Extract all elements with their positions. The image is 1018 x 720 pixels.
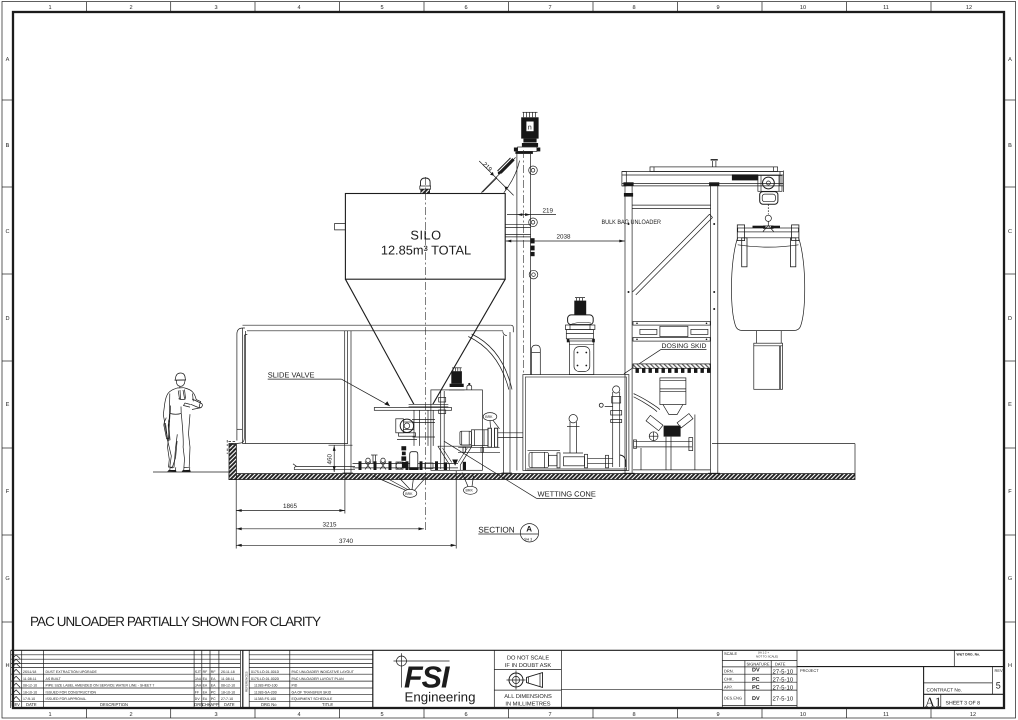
svg-text:0175-LO-01-002D: 0175-LO-01-002D	[251, 677, 280, 681]
svg-text:4: 4	[297, 712, 300, 718]
svg-text:RF: RF	[203, 670, 208, 674]
svg-text:DV: DV	[752, 696, 760, 702]
svg-text:3215: 3215	[323, 521, 338, 528]
svg-text:ISSUED FOR APPROVAL: ISSUED FOR APPROVAL	[46, 697, 87, 701]
svg-text:11383-PID-100: 11383-PID-100	[254, 684, 278, 688]
svg-text:E: E	[6, 402, 10, 408]
svg-text:PID: PID	[292, 684, 298, 688]
svg-text:8: 8	[632, 712, 635, 718]
svg-text:12: 12	[966, 5, 972, 11]
svg-text:10: 10	[800, 712, 806, 718]
svg-text:11383-GA-200: 11383-GA-200	[254, 690, 277, 694]
svg-text:27-5-10: 27-5-10	[773, 668, 794, 675]
svg-text:B: B	[6, 143, 10, 149]
svg-text:EA: EA	[203, 697, 208, 701]
svg-text:5: 5	[380, 712, 383, 718]
svg-text:SLIDE VALVE: SLIDE VALVE	[268, 371, 315, 380]
svg-text:BRK: BRK	[466, 489, 474, 493]
svg-text:EA: EA	[203, 690, 208, 694]
svg-text:11: 11	[883, 712, 889, 718]
svg-text:2: 2	[129, 5, 132, 11]
svg-text:11383-FS-100: 11383-FS-100	[254, 697, 276, 701]
svg-text:DATE: DATE	[775, 661, 786, 666]
svg-text:SCALE: SCALE	[724, 651, 737, 656]
svg-text:0175-LO-01-001D: 0175-LO-01-001D	[251, 670, 280, 674]
svg-text:CHK.: CHK.	[724, 677, 734, 682]
svg-text:18-10-10: 18-10-10	[221, 690, 235, 694]
svg-text:H: H	[1008, 663, 1012, 669]
svg-text:1: 1	[48, 712, 51, 718]
svg-text:PIPE SIZE LABEL AMENDED ON SER: PIPE SIZE LABEL AMENDED ON SERVICE WATER…	[46, 684, 155, 688]
svg-text:APP.: APP.	[724, 685, 733, 690]
svg-text:AS BUILT: AS BUILT	[46, 677, 62, 681]
svg-text:DRG No: DRG No	[261, 702, 277, 707]
svg-text:5: 5	[380, 5, 383, 11]
svg-text:9: 9	[716, 5, 719, 11]
svg-text:DV: DV	[752, 668, 760, 674]
svg-text:26/11/18: 26/11/18	[23, 670, 36, 674]
svg-text:CONTRACT No.: CONTRACT No.	[927, 687, 962, 693]
svg-text:6: 6	[464, 712, 467, 718]
svg-text:3: 3	[214, 712, 217, 718]
svg-text:SECTION: SECTION	[478, 526, 514, 535]
svg-text:TITLE: TITLE	[322, 702, 333, 707]
svg-text:E: E	[1008, 402, 1012, 408]
svg-text:GA OF TRANSFER SKID: GA OF TRANSFER SKID	[292, 690, 332, 694]
svg-text:W&T DRG. No.: W&T DRG. No.	[957, 653, 981, 657]
svg-text:PC: PC	[211, 690, 216, 694]
svg-text:SHEET 3 OF 8: SHEET 3 OF 8	[946, 701, 981, 707]
svg-text:BULK BAG UNLOADER: BULK BAG UNLOADER	[602, 219, 662, 226]
svg-text:G: G	[1008, 576, 1012, 582]
svg-text:EA: EA	[211, 677, 216, 681]
svg-text:F: F	[1008, 489, 1012, 495]
svg-text:G: G	[5, 576, 9, 582]
svg-text:4: 4	[297, 5, 300, 11]
svg-text:A: A	[1008, 57, 1012, 63]
svg-text:n: n	[528, 123, 532, 132]
svg-text:12: 12	[970, 712, 976, 718]
svg-text:17-9-10: 17-9-10	[23, 697, 35, 701]
svg-text:3: 3	[214, 5, 217, 11]
svg-text:JAA: JAA	[195, 677, 202, 681]
svg-text:2038: 2038	[557, 233, 572, 240]
svg-text:DES.ENG: DES.ENG	[724, 695, 742, 700]
svg-text:REFERENCES: REFERENCES	[245, 671, 249, 692]
svg-text:FF: FF	[195, 690, 199, 694]
svg-text:18-10-10: 18-10-10	[23, 690, 37, 694]
svg-text:PAC UNLOADER INDICATIVE LAYOUT: PAC UNLOADER INDICATIVE LAYOUT	[292, 670, 355, 674]
svg-text:PC: PC	[752, 685, 760, 691]
svg-text:SIGNATURE: SIGNATURE	[747, 661, 770, 666]
svg-text:27-5-10: 27-5-10	[773, 684, 794, 691]
svg-text:PC: PC	[211, 697, 216, 701]
svg-text:27-5-10: 27-5-10	[773, 676, 794, 683]
svg-text:2: 2	[129, 712, 132, 718]
svg-text:APP: APP	[210, 702, 218, 707]
svg-text:460: 460	[327, 453, 334, 464]
svg-text:EA: EA	[211, 684, 216, 688]
svg-text:D: D	[1008, 316, 1012, 322]
svg-text:6: 6	[464, 5, 467, 11]
svg-text:11-08-11: 11-08-11	[221, 677, 235, 681]
svg-text:7: 7	[548, 5, 551, 11]
svg-text:A: A	[526, 525, 532, 534]
svg-text:1865: 1865	[283, 503, 298, 510]
svg-text:EA: EA	[203, 684, 208, 688]
svg-text:08-12-10: 08-12-10	[23, 684, 37, 688]
svg-text:DATE: DATE	[26, 702, 37, 707]
svg-text:PC: PC	[752, 677, 760, 683]
svg-text:8: 8	[632, 5, 635, 11]
svg-text:1: 1	[48, 5, 51, 11]
svg-text:11: 11	[883, 5, 889, 11]
svg-text:RF: RF	[211, 670, 216, 674]
svg-text:C: C	[5, 229, 9, 235]
svg-text:BRK: BRK	[405, 492, 413, 496]
svg-text:27-5-10: 27-5-10	[773, 695, 794, 702]
svg-text:9: 9	[716, 712, 719, 718]
svg-text:EQUIPMENT SCHEDULE: EQUIPMENT SCHEDULE	[292, 697, 333, 701]
svg-text:PROJECT: PROJECT	[800, 668, 819, 673]
svg-text:PAC UNLOADER PARTIALLY SHOWN F: PAC UNLOADER PARTIALLY SHOWN FOR CLARITY	[30, 614, 321, 629]
svg-text:PAC UNLOADER LAYOUT PLAN: PAC UNLOADER LAYOUT PLAN	[292, 677, 345, 681]
svg-text:3740: 3740	[339, 538, 354, 545]
svg-text:F: F	[6, 489, 10, 495]
svg-text:EA: EA	[203, 677, 208, 681]
svg-text:A: A	[6, 57, 10, 63]
svg-text:DV: DV	[195, 697, 201, 701]
svg-text:27-7-10: 27-7-10	[221, 697, 233, 701]
svg-text:ISSUED FOR CONSTRUCTION: ISSUED FOR CONSTRUCTION	[46, 690, 97, 694]
svg-text:Engineering: Engineering	[405, 689, 476, 704]
svg-text:NOT TO SCALE): NOT TO SCALE)	[756, 654, 778, 658]
svg-text:10: 10	[800, 5, 806, 11]
svg-text:DO NOT SCALE: DO NOT SCALE	[507, 656, 549, 662]
svg-text:JAA: JAA	[195, 684, 202, 688]
svg-text:H: H	[5, 663, 9, 669]
svg-text:WETTING CONE: WETTING CONE	[538, 490, 596, 499]
svg-text:7: 7	[548, 712, 551, 718]
svg-text:BRK: BRK	[485, 415, 493, 419]
svg-text:SH 3: SH 3	[524, 537, 532, 541]
svg-text:DATE: DATE	[224, 702, 235, 707]
svg-text:12.85m³ TOTAL: 12.85m³ TOTAL	[381, 243, 471, 258]
svg-text:IN MILLIMETRES: IN MILLIMETRES	[505, 702, 550, 708]
svg-text:SILO: SILO	[410, 228, 441, 243]
svg-text:DOSING SKID: DOSING SKID	[662, 343, 707, 350]
svg-text:5: 5	[996, 681, 1001, 691]
svg-text:DRN.: DRN.	[724, 669, 734, 674]
svg-text:26-11-18: 26-11-18	[221, 670, 235, 674]
svg-text:B: B	[1008, 143, 1012, 149]
svg-text:DESCRIPTION: DESCRIPTION	[100, 702, 128, 707]
svg-text:DUST EXTRACTION UPGRADE: DUST EXTRACTION UPGRADE	[46, 670, 98, 674]
svg-text:D: D	[5, 316, 9, 322]
svg-text:REV: REV	[12, 702, 21, 707]
svg-text:219: 219	[543, 207, 554, 214]
svg-text:SJT: SJT	[195, 670, 202, 674]
svg-text:C: C	[1008, 229, 1012, 235]
svg-text:IF IN DOUBT ASK: IF IN DOUBT ASK	[505, 663, 552, 669]
svg-text:08-12-10: 08-12-10	[221, 684, 235, 688]
svg-text:REV: REV	[995, 668, 1004, 673]
svg-text:11-08-11: 11-08-11	[23, 677, 37, 681]
svg-text:ALL DIMENSIONS: ALL DIMENSIONS	[504, 694, 552, 700]
svg-text:A1: A1	[925, 695, 942, 710]
